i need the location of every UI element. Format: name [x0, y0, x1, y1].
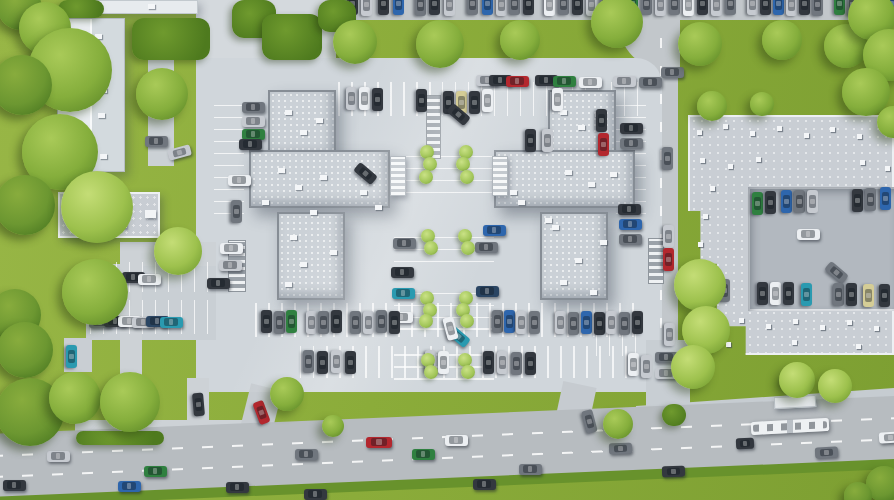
roof-hatch [518, 200, 525, 205]
car [317, 351, 328, 374]
planter-bush [461, 365, 475, 379]
hedge [662, 404, 686, 426]
car [725, 0, 736, 15]
car [783, 282, 794, 305]
car [160, 317, 183, 328]
car [553, 76, 576, 87]
car [544, 0, 555, 16]
planter-bush [419, 170, 433, 184]
roof-vent [703, 214, 708, 219]
tree [416, 20, 464, 68]
small-building-roof [92, 0, 198, 14]
car [66, 345, 77, 368]
roof-hatch [578, 125, 585, 130]
tree [333, 20, 377, 64]
roof-vent [777, 126, 782, 131]
car [506, 76, 529, 87]
car [711, 0, 722, 16]
hedge [262, 14, 322, 60]
car [865, 188, 876, 211]
car [318, 311, 329, 334]
tree [49, 372, 101, 424]
car [807, 190, 818, 213]
car [303, 350, 314, 373]
car [879, 284, 890, 307]
roof-vent [856, 344, 861, 349]
car [834, 0, 845, 15]
car [393, 238, 416, 249]
car [228, 175, 251, 186]
roof-hatch [552, 225, 559, 230]
roof-hatch [278, 168, 285, 173]
tree [500, 20, 540, 60]
roof-hatch [360, 190, 367, 195]
roof-hatch [600, 240, 607, 245]
car [473, 479, 496, 490]
car [226, 482, 249, 493]
car [801, 283, 812, 306]
roof-hatch [100, 154, 107, 159]
tree [62, 259, 128, 325]
roof-hatch [290, 235, 297, 240]
car [359, 87, 370, 110]
car [655, 0, 666, 16]
car [445, 435, 468, 446]
tree [678, 22, 722, 66]
car [345, 351, 356, 374]
tree [750, 92, 774, 116]
hedge [76, 431, 164, 445]
car [765, 191, 776, 214]
car [581, 311, 592, 334]
roof-hatch [545, 218, 552, 223]
car [391, 267, 414, 278]
planter-bush [460, 314, 474, 328]
car [833, 283, 844, 306]
tree [818, 369, 852, 403]
entrance-canopy [492, 156, 508, 196]
car [663, 248, 674, 271]
car [736, 437, 755, 449]
car [773, 0, 784, 15]
car [752, 192, 763, 215]
car [444, 0, 455, 16]
car [482, 89, 493, 112]
roof-hatch [310, 210, 317, 215]
tree [322, 415, 344, 437]
roof-vent [885, 166, 890, 171]
car [192, 392, 205, 416]
car [846, 283, 857, 306]
roof-vent [756, 157, 761, 162]
car [661, 67, 684, 78]
car [511, 352, 522, 375]
car [572, 0, 583, 15]
car [620, 123, 643, 134]
planter-bush [424, 241, 438, 255]
car [469, 91, 480, 114]
tree [779, 362, 815, 398]
roof-hatch [285, 282, 292, 287]
roof-vent [792, 340, 797, 345]
roof-vent [728, 164, 733, 169]
car [683, 0, 694, 16]
tree [136, 68, 188, 120]
car [416, 89, 427, 112]
car [523, 0, 534, 15]
car [757, 282, 768, 305]
roof-hatch [262, 200, 269, 205]
roof-vent [820, 325, 825, 330]
car [598, 133, 609, 156]
car [242, 116, 265, 127]
hedge [132, 18, 210, 60]
roof-hatch [510, 190, 517, 195]
car [786, 0, 797, 16]
car [669, 0, 680, 15]
roof-hatch [300, 130, 307, 135]
car [496, 0, 507, 16]
tree [671, 345, 715, 389]
car [467, 0, 478, 15]
car [145, 136, 168, 147]
car [286, 310, 297, 333]
car [799, 0, 810, 15]
car [306, 311, 317, 334]
planter-bush [460, 170, 474, 184]
car [555, 311, 566, 334]
car [747, 0, 758, 15]
car [880, 187, 891, 210]
roof-vent [830, 127, 835, 132]
roof-vent [700, 158, 705, 163]
car [529, 311, 540, 334]
car [331, 310, 342, 333]
car [579, 77, 602, 88]
car [519, 464, 542, 475]
car [483, 225, 506, 236]
car [144, 466, 167, 477]
roof-vent [860, 160, 865, 165]
car [594, 312, 605, 335]
car [438, 351, 449, 374]
car [608, 442, 631, 454]
roof-vent [726, 342, 731, 347]
roof-hatch [330, 250, 337, 255]
roof-hatch [610, 172, 617, 177]
car [372, 88, 383, 111]
car [331, 350, 342, 373]
car [346, 87, 357, 110]
tree [697, 91, 727, 121]
roof-hatch [285, 110, 292, 115]
roof-hatch [320, 175, 327, 180]
tree [674, 259, 726, 311]
car [525, 129, 536, 152]
car [376, 310, 387, 333]
car [412, 449, 435, 460]
car [619, 312, 630, 335]
car [760, 0, 771, 15]
car [552, 88, 563, 111]
car [261, 310, 272, 333]
garage-ramp [648, 238, 664, 284]
roof-hatch [316, 118, 323, 123]
aerial-site-render [0, 0, 894, 500]
entrance-canopy [390, 156, 406, 196]
tree [0, 175, 55, 235]
tree [0, 322, 53, 378]
car [295, 449, 318, 460]
car [497, 351, 508, 374]
car [662, 147, 673, 170]
car [628, 353, 639, 376]
roof-vent [793, 319, 798, 324]
car [641, 0, 652, 15]
parking-stall-lines [394, 145, 494, 193]
car [852, 189, 863, 212]
car [620, 138, 643, 149]
car [363, 311, 374, 334]
roof-hatch [375, 205, 382, 210]
tree [61, 171, 133, 243]
car [393, 0, 404, 15]
roof-vent [857, 134, 862, 139]
roof-vent [804, 133, 809, 138]
roof-hatch [588, 182, 595, 187]
planter-bush [419, 314, 433, 328]
planter-bush [423, 157, 437, 171]
car [47, 451, 70, 462]
car [219, 260, 242, 271]
car [483, 351, 494, 374]
car [274, 311, 285, 334]
car [509, 0, 520, 15]
tree [270, 377, 304, 411]
car [392, 288, 415, 299]
car [697, 0, 708, 15]
car [207, 278, 230, 289]
car [504, 310, 515, 333]
roof-hatch [590, 290, 597, 295]
car [558, 0, 569, 15]
car [641, 355, 652, 378]
planter-bush [456, 157, 470, 171]
car [516, 311, 527, 334]
car [797, 229, 820, 240]
car [242, 102, 265, 113]
car [366, 437, 392, 448]
roof-vent [723, 124, 728, 129]
car [639, 77, 662, 88]
roof-hatch [295, 185, 302, 190]
car [664, 323, 675, 346]
apartment-tower-right-roof [494, 150, 635, 208]
car [863, 284, 874, 307]
car [476, 286, 499, 297]
roof-vent [698, 242, 703, 247]
car [568, 312, 579, 335]
tree [154, 227, 202, 275]
car [239, 139, 262, 150]
car [118, 481, 141, 492]
apartment-tower-right-roof [540, 212, 608, 300]
car [304, 489, 327, 500]
roof-hatch [575, 258, 582, 263]
car [361, 0, 372, 16]
roof-vent [697, 130, 702, 135]
car [525, 352, 536, 375]
car [770, 282, 781, 305]
car [482, 0, 493, 15]
roof-vent [750, 131, 755, 136]
car [3, 480, 26, 491]
car [812, 0, 823, 16]
roof-vent [847, 320, 852, 325]
car [415, 0, 426, 16]
roof-hatch [98, 113, 105, 118]
car [231, 200, 242, 223]
planter-bush [461, 241, 475, 255]
car [475, 242, 498, 253]
car [794, 190, 805, 213]
car [878, 431, 894, 443]
car [814, 446, 838, 458]
rooftop-unit [145, 210, 156, 218]
tree [762, 20, 802, 60]
planter-bush [424, 365, 438, 379]
roof-hatch [565, 170, 572, 175]
car [378, 0, 389, 15]
car [619, 219, 642, 230]
car [138, 274, 161, 285]
car [492, 310, 503, 333]
car [661, 465, 684, 477]
car [220, 243, 243, 254]
car [596, 109, 607, 132]
car [350, 311, 361, 334]
car [618, 204, 641, 215]
car [606, 311, 617, 334]
car [613, 76, 636, 87]
tree [603, 409, 633, 439]
roof-hatch [300, 262, 307, 267]
tree [100, 372, 160, 432]
roof-vent [874, 326, 879, 331]
tree [0, 55, 52, 115]
car [663, 225, 674, 248]
roof-vent [710, 186, 715, 191]
parking-stall-lines [214, 96, 244, 214]
car [781, 190, 792, 213]
car [429, 0, 440, 15]
roof-vent [739, 318, 744, 323]
car [619, 234, 642, 245]
roof-hatch [148, 4, 155, 9]
roof-hatch [560, 280, 567, 285]
car [389, 311, 400, 334]
roof-vent [766, 324, 771, 329]
car [542, 129, 553, 152]
car [632, 311, 643, 334]
